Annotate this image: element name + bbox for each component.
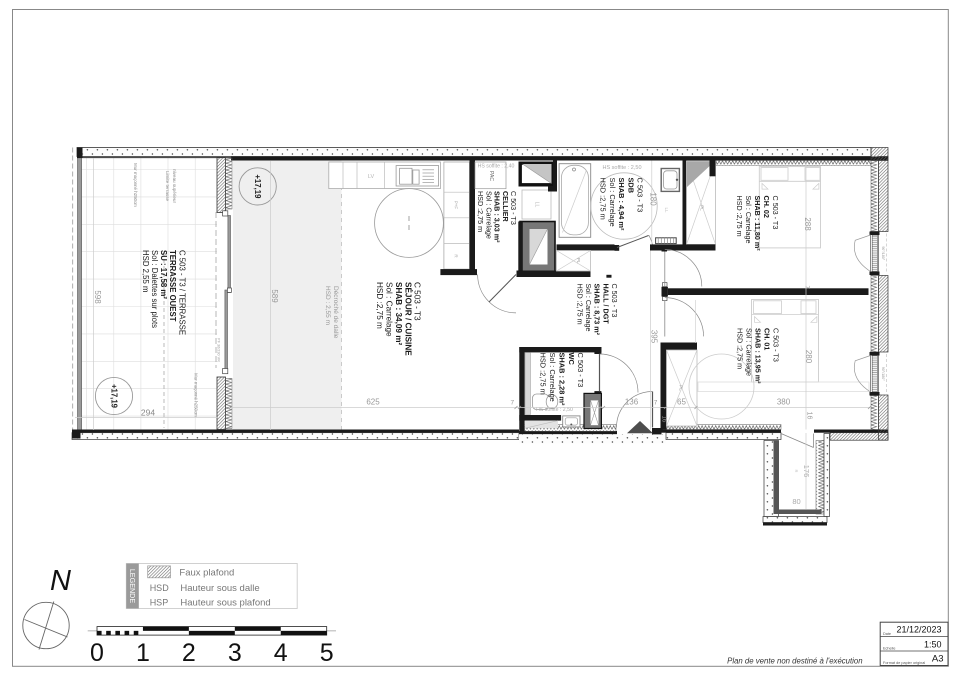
svg-text:2: 2 — [182, 639, 196, 667]
svg-text:136: 136 — [625, 398, 639, 407]
svg-text:90°/180°: 90°/180° — [881, 367, 885, 381]
svg-text:N: N — [50, 565, 71, 597]
svg-text:589: 589 — [270, 289, 279, 303]
svg-text:C 503 - T3: C 503 - T3 — [610, 284, 619, 318]
svg-text:288: 288 — [803, 217, 812, 231]
svg-text:HSD :2,75 m: HSD :2,75 m — [735, 196, 744, 237]
svg-text:Sol : Carrelage: Sol : Carrelage — [745, 328, 754, 376]
svg-text:C 503 - T3: C 503 - T3 — [636, 178, 645, 213]
svg-text:SHAB : 8,73 m²: SHAB : 8,73 m² — [593, 284, 602, 336]
svg-text:PF 36/230 VR: PF 36/230 VR — [216, 338, 220, 362]
svg-text:4: 4 — [274, 639, 288, 667]
svg-text:Faux plafond: Faux plafond — [179, 568, 234, 579]
svg-text:A3: A3 — [932, 654, 944, 665]
svg-text:294: 294 — [141, 408, 155, 418]
svg-text:Format de papier original: Format de papier original — [883, 661, 925, 665]
svg-text:HSD 2,55 m: HSD 2,55 m — [141, 250, 150, 292]
svg-text:Décroché de dalle: Décroché de dalle — [332, 286, 339, 339]
svg-text:Echelle: Echelle — [883, 647, 895, 651]
svg-text:65: 65 — [677, 398, 686, 407]
svg-text:HSP: HSP — [150, 598, 169, 608]
svg-text:HSD :2,75 m: HSD :2,75 m — [476, 191, 485, 232]
svg-text:395: 395 — [650, 330, 659, 344]
svg-text:HS soffite : 2,50: HS soffite : 2,50 — [602, 165, 641, 171]
svg-text:Sol : Carrelage: Sol : Carrelage — [385, 282, 394, 337]
svg-text:Sol : Carrelage: Sol : Carrelage — [548, 353, 557, 402]
svg-text:Mur maçonné h250cm: Mur maçonné h250cm — [133, 163, 138, 207]
svg-text:180: 180 — [649, 192, 658, 206]
svg-text:HSD :2,75 m: HSD :2,75 m — [539, 353, 548, 395]
svg-text:280: 280 — [804, 350, 813, 364]
svg-text:Limite terrasse: Limite terrasse — [165, 171, 170, 202]
svg-text:Plan de vente non destiné à l': Plan de vente non destiné à l'exécution — [727, 657, 862, 666]
svg-text:Sol : Carrelage: Sol : Carrelage — [584, 284, 593, 332]
svg-text:HSD :2,75 m: HSD :2,75 m — [736, 328, 745, 369]
svg-text:HSD :2,75 m: HSD :2,75 m — [575, 284, 584, 325]
svg-text:niveau supérieur: niveau supérieur — [172, 169, 177, 203]
svg-text:SU : 17,58 m²: SU : 17,58 m² — [159, 250, 168, 299]
svg-text:SHAB : 11,80 m²: SHAB : 11,80 m² — [753, 196, 762, 252]
svg-text:Sol : Carrelage: Sol : Carrelage — [608, 178, 617, 227]
svg-text:Date: Date — [883, 632, 891, 636]
svg-text:WC: WC — [567, 353, 576, 366]
svg-text:SDB: SDB — [626, 178, 635, 194]
svg-text:SHAB : 34,09 m²: SHAB : 34,09 m² — [394, 282, 403, 346]
svg-text:C 503 - T3: C 503 - T3 — [772, 328, 781, 362]
svg-text:3: 3 — [228, 639, 242, 667]
svg-text:C 503 - T3: C 503 - T3 — [413, 282, 422, 321]
svg-text:SÉJOUR / CUISINE: SÉJOUR / CUISINE — [403, 282, 413, 356]
svg-text:LL: LL — [534, 202, 540, 208]
svg-text:PAC: PAC — [488, 171, 494, 181]
svg-text:Hauteur sous dalle: Hauteur sous dalle — [180, 583, 259, 594]
svg-text:LV: LV — [368, 174, 375, 180]
svg-text:LL: LL — [664, 207, 669, 213]
svg-text:PL: PL — [700, 205, 705, 211]
svg-text:SHAB : 13,95 m²: SHAB : 13,95 m² — [754, 328, 763, 384]
svg-text:HSD :2,75 m: HSD :2,75 m — [375, 282, 384, 329]
svg-text:+17,19: +17,19 — [110, 384, 119, 409]
svg-text:7: 7 — [654, 400, 658, 407]
svg-text:1:50: 1:50 — [924, 640, 942, 650]
svg-text:598: 598 — [93, 290, 102, 304]
svg-text:80: 80 — [792, 497, 800, 506]
svg-text:1: 1 — [136, 639, 150, 667]
svg-text:LEGENDE: LEGENDE — [128, 569, 137, 604]
svg-text:C 503 - T3 / TERRASSE: C 503 - T3 / TERRASSE — [177, 250, 186, 335]
svg-text:16: 16 — [806, 412, 813, 420]
svg-text:21/12/2023: 21/12/2023 — [896, 625, 941, 635]
svg-text:176: 176 — [802, 465, 811, 478]
svg-text:7: 7 — [510, 400, 514, 407]
svg-text:7: 7 — [803, 285, 810, 289]
svg-text:SHAB : 4,94 m²: SHAB : 4,94 m² — [617, 178, 626, 232]
svg-text:C 503 - T3: C 503 - T3 — [576, 353, 585, 388]
svg-text:0: 0 — [90, 639, 104, 667]
svg-text:HSD :2,75 m: HSD :2,75 m — [599, 178, 608, 220]
svg-text:+17,19: +17,19 — [253, 174, 262, 199]
svg-text:5: 5 — [320, 639, 334, 667]
svg-text:90°/180°: 90°/180° — [881, 246, 885, 260]
svg-text:625: 625 — [366, 398, 380, 407]
svg-text:P+F: P+F — [454, 201, 459, 210]
svg-text:Mur maçonné h250cm: Mur maçonné h250cm — [194, 373, 199, 417]
svg-text:HS soffite : 2,40: HS soffite : 2,40 — [478, 164, 515, 170]
svg-text:C 503 - T3: C 503 - T3 — [771, 196, 780, 230]
svg-text:HALL / DGT: HALL / DGT — [601, 284, 610, 325]
svg-text:SHAB : 2,28 m²: SHAB : 2,28 m² — [557, 353, 566, 407]
svg-text:PL: PL — [576, 258, 581, 264]
svg-text:CH. 02: CH. 02 — [762, 196, 771, 218]
svg-text:380: 380 — [777, 398, 791, 407]
svg-text:R: R — [794, 470, 799, 473]
svg-text:Sol : Carrelage: Sol : Carrelage — [744, 196, 753, 244]
svg-text:CH. 01: CH. 01 — [763, 328, 772, 350]
svg-text:HSD : 2,55 m: HSD : 2,55 m — [324, 286, 331, 325]
svg-text:Sol : Dalettes sur plots: Sol : Dalettes sur plots — [150, 250, 159, 328]
svg-text:HSD: HSD — [150, 583, 170, 593]
svg-text:PL: PL — [679, 385, 684, 391]
svg-text:TERRASSE OUEST: TERRASSE OUEST — [168, 250, 177, 322]
svg-text:16: 16 — [661, 416, 667, 423]
svg-text:Hauteur sous plafond: Hauteur sous plafond — [180, 598, 270, 609]
